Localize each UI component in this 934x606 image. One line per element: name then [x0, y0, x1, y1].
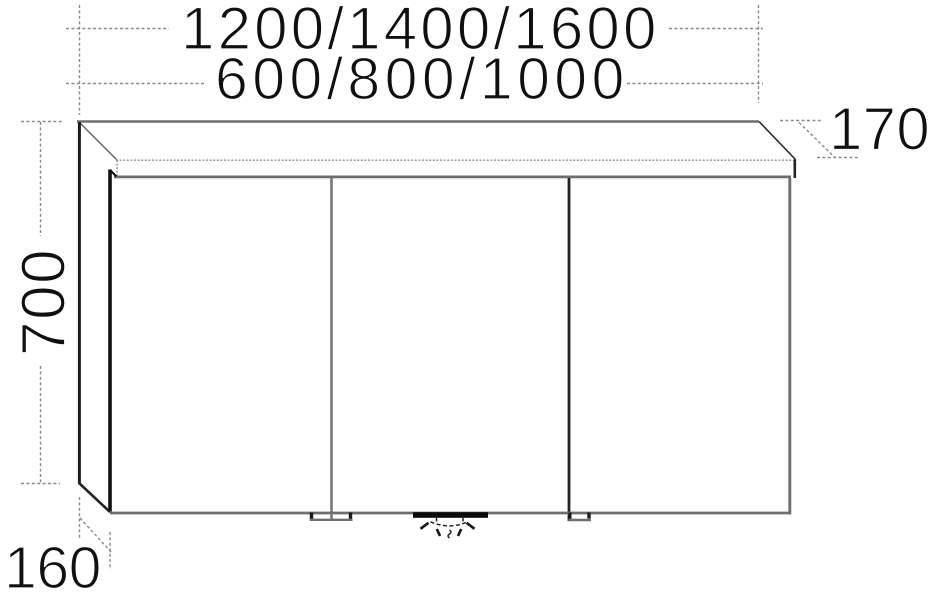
svg-text:700: 700	[10, 248, 79, 356]
svg-text:600/800/1000: 600/800/1000	[215, 46, 629, 112]
svg-text:160: 160	[4, 535, 101, 601]
svg-text:170: 170	[829, 96, 930, 163]
